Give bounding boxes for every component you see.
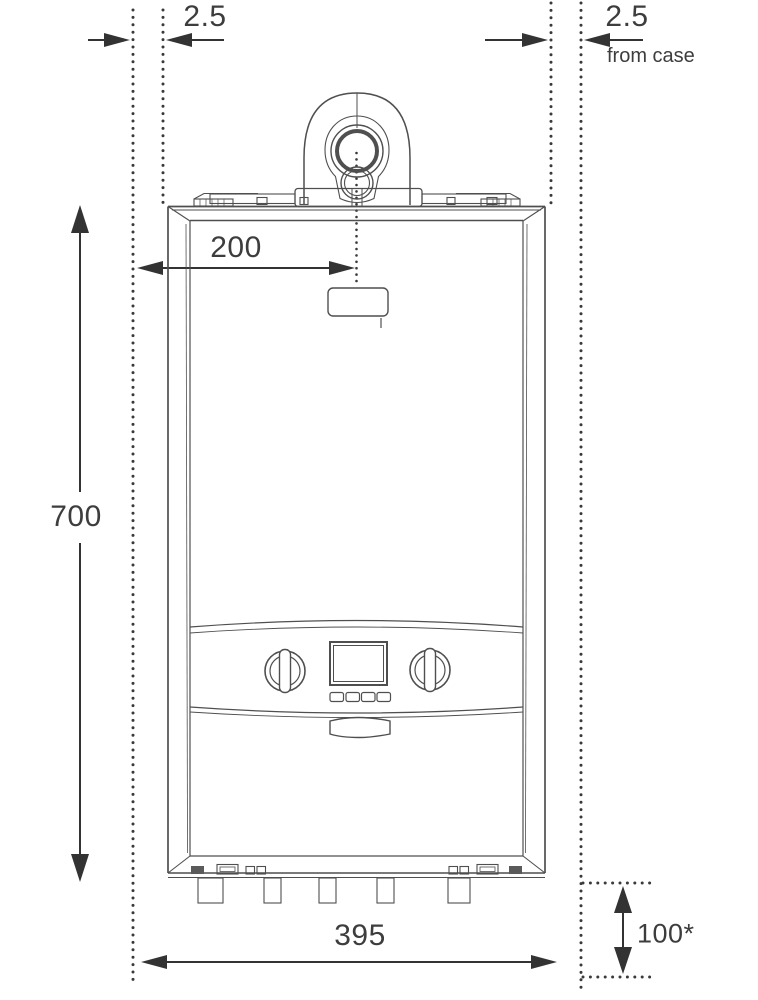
display-screen	[330, 642, 387, 685]
panel-button	[330, 693, 344, 702]
technical-diagram-page: 2.5 2.5 from case 700 200 395 100*	[0, 0, 758, 1000]
pipe-stub	[377, 878, 394, 903]
right-control-knob	[410, 649, 450, 692]
control-panel	[265, 642, 450, 738]
panel-button	[362, 693, 376, 702]
panel-button	[377, 693, 391, 702]
pipe-stub	[264, 878, 281, 903]
bottom-connections	[191, 865, 522, 904]
left-clearance-label: 2.5	[183, 2, 226, 32]
right-clearance-label: 2.5	[605, 2, 648, 32]
dimension-arrows	[71, 33, 643, 974]
height-label: 700	[50, 502, 102, 532]
panel-buttons	[330, 693, 391, 702]
dimension-width-395	[141, 955, 557, 969]
boiler-technical-drawing	[0, 0, 758, 1000]
dimension-height-700	[71, 205, 89, 882]
boiler-artwork	[168, 93, 545, 903]
front-badge-plate	[328, 288, 388, 316]
bottom-clearance-label: 100*	[637, 921, 695, 948]
clearance-guide-lines	[133, 3, 657, 990]
case-outline	[168, 207, 545, 878]
pipe-stub	[198, 878, 223, 903]
right-clearance-note: from case	[607, 46, 695, 66]
panel-flap-handle	[330, 718, 390, 738]
dimension-left-clearance	[88, 33, 224, 47]
flue-offset-label: 200	[210, 233, 262, 263]
width-label: 395	[334, 921, 386, 951]
left-control-knob	[265, 650, 305, 693]
front-panel-details	[190, 288, 523, 718]
pipe-stub	[319, 878, 336, 903]
panel-button	[346, 693, 360, 702]
pipe-stub	[448, 878, 470, 903]
dimension-bottom-clearance-100	[614, 886, 632, 974]
